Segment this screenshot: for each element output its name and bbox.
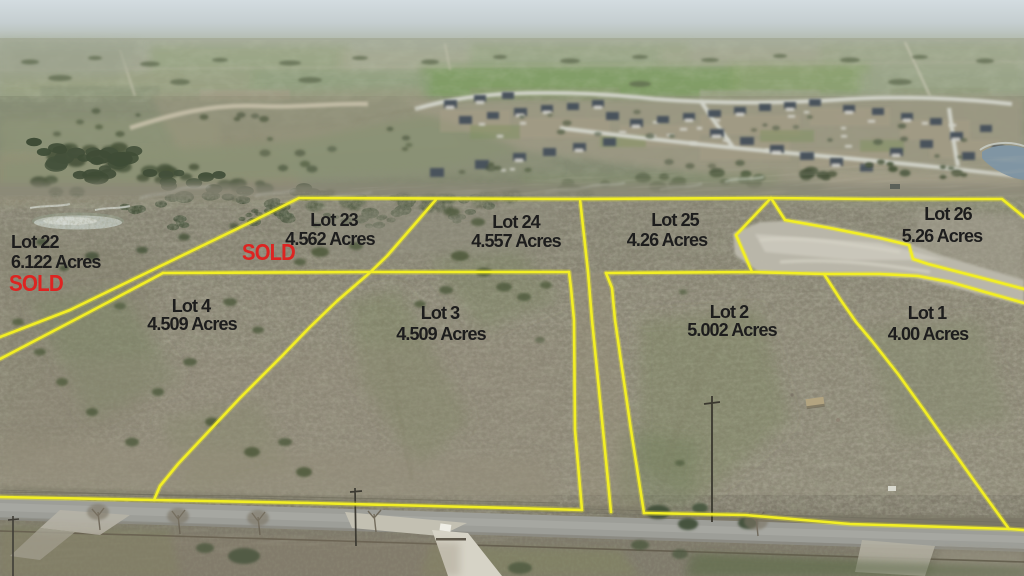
- svg-text:4.26 Acres: 4.26 Acres: [627, 230, 708, 250]
- svg-text:4.557 Acres: 4.557 Acres: [471, 231, 561, 251]
- svg-text:Lot 25: Lot 25: [651, 210, 699, 230]
- svg-text:4.00 Acres: 4.00 Acres: [888, 324, 969, 344]
- svg-text:Lot 1: Lot 1: [908, 303, 947, 323]
- svg-text:4.509 Acres: 4.509 Acres: [396, 324, 486, 344]
- svg-text:Lot 2: Lot 2: [710, 302, 749, 322]
- svg-text:Lot 26: Lot 26: [924, 204, 972, 224]
- svg-text:6.122 Acres: 6.122 Acres: [11, 252, 101, 272]
- svg-text:SOLD: SOLD: [9, 270, 63, 296]
- svg-text:Lot 3: Lot 3: [421, 303, 460, 323]
- svg-text:SOLD: SOLD: [242, 239, 295, 265]
- svg-text:Lot 22: Lot 22: [11, 232, 59, 252]
- svg-text:4.562 Acres: 4.562 Acres: [285, 229, 375, 249]
- svg-text:Lot 23: Lot 23: [310, 210, 358, 230]
- svg-text:5.002 Acres: 5.002 Acres: [687, 320, 777, 340]
- svg-text:Lot 24: Lot 24: [492, 212, 540, 232]
- svg-text:4.509 Acres: 4.509 Acres: [147, 314, 237, 334]
- svg-text:5.26 Acres: 5.26 Acres: [902, 226, 983, 246]
- svg-text:Lot 4: Lot 4: [172, 296, 211, 316]
